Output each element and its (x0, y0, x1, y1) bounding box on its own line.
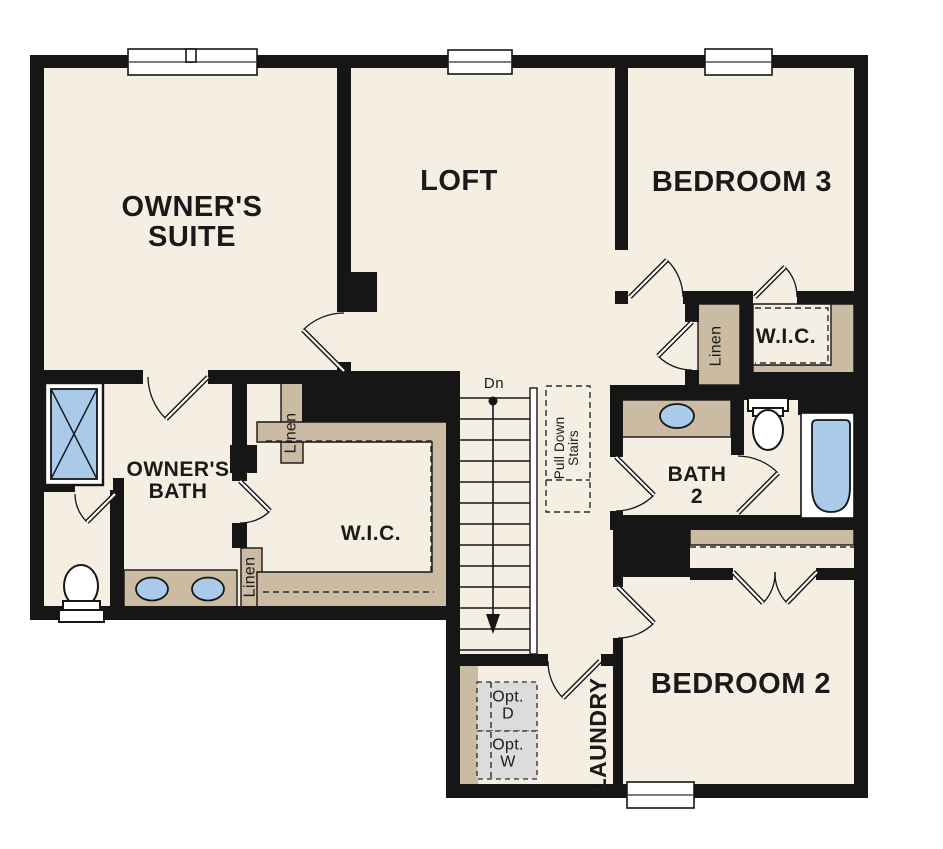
floor-plan-canvas (0, 0, 943, 849)
bedroom3-label: BEDROOM 3 (652, 167, 832, 197)
window-loft (448, 50, 512, 74)
linen-owners-bath-label: Linen (284, 413, 301, 454)
linen-bedroom3-label: Linen (709, 326, 726, 367)
bath2-label: BATH 2 (668, 464, 727, 508)
window-owners-suite (128, 49, 257, 75)
stair-railing (530, 388, 537, 654)
optional-washer-label: Opt. W (492, 737, 523, 770)
bedroom2-label: BEDROOM 2 (651, 669, 831, 699)
optional-dryer-label: Opt. D (492, 689, 523, 722)
stairs-down-label: Dn (484, 376, 504, 392)
window-bedroom3 (705, 49, 772, 75)
sink-owners-vanity-right (192, 578, 224, 601)
loft-label: LOFT (420, 166, 498, 196)
floor-plan: OWNER'S SUITE LOFT BEDROOM 3 W.I.C. OWNE… (0, 0, 943, 849)
linen-owners-wic-label: Linen (243, 557, 260, 598)
laundry-label: LAUNDRY (587, 677, 611, 792)
bathtub-bath2 (801, 413, 854, 518)
sink-owners-vanity-left (136, 578, 168, 601)
sink-bath2 (660, 404, 694, 428)
owners-bath-label: OWNER'S BATH (127, 459, 230, 503)
owners-wic-label: W.I.C. (341, 523, 401, 545)
window-bedroom2 (627, 782, 694, 808)
pull-down-stairs-label: Pull Down Stairs (553, 417, 581, 480)
laundry-hookup-wall (460, 660, 478, 784)
bedroom3-wic-label: W.I.C. (756, 326, 816, 348)
owners-suite-label: OWNER'S SUITE (122, 192, 263, 252)
shower-owners-bath (45, 383, 103, 485)
